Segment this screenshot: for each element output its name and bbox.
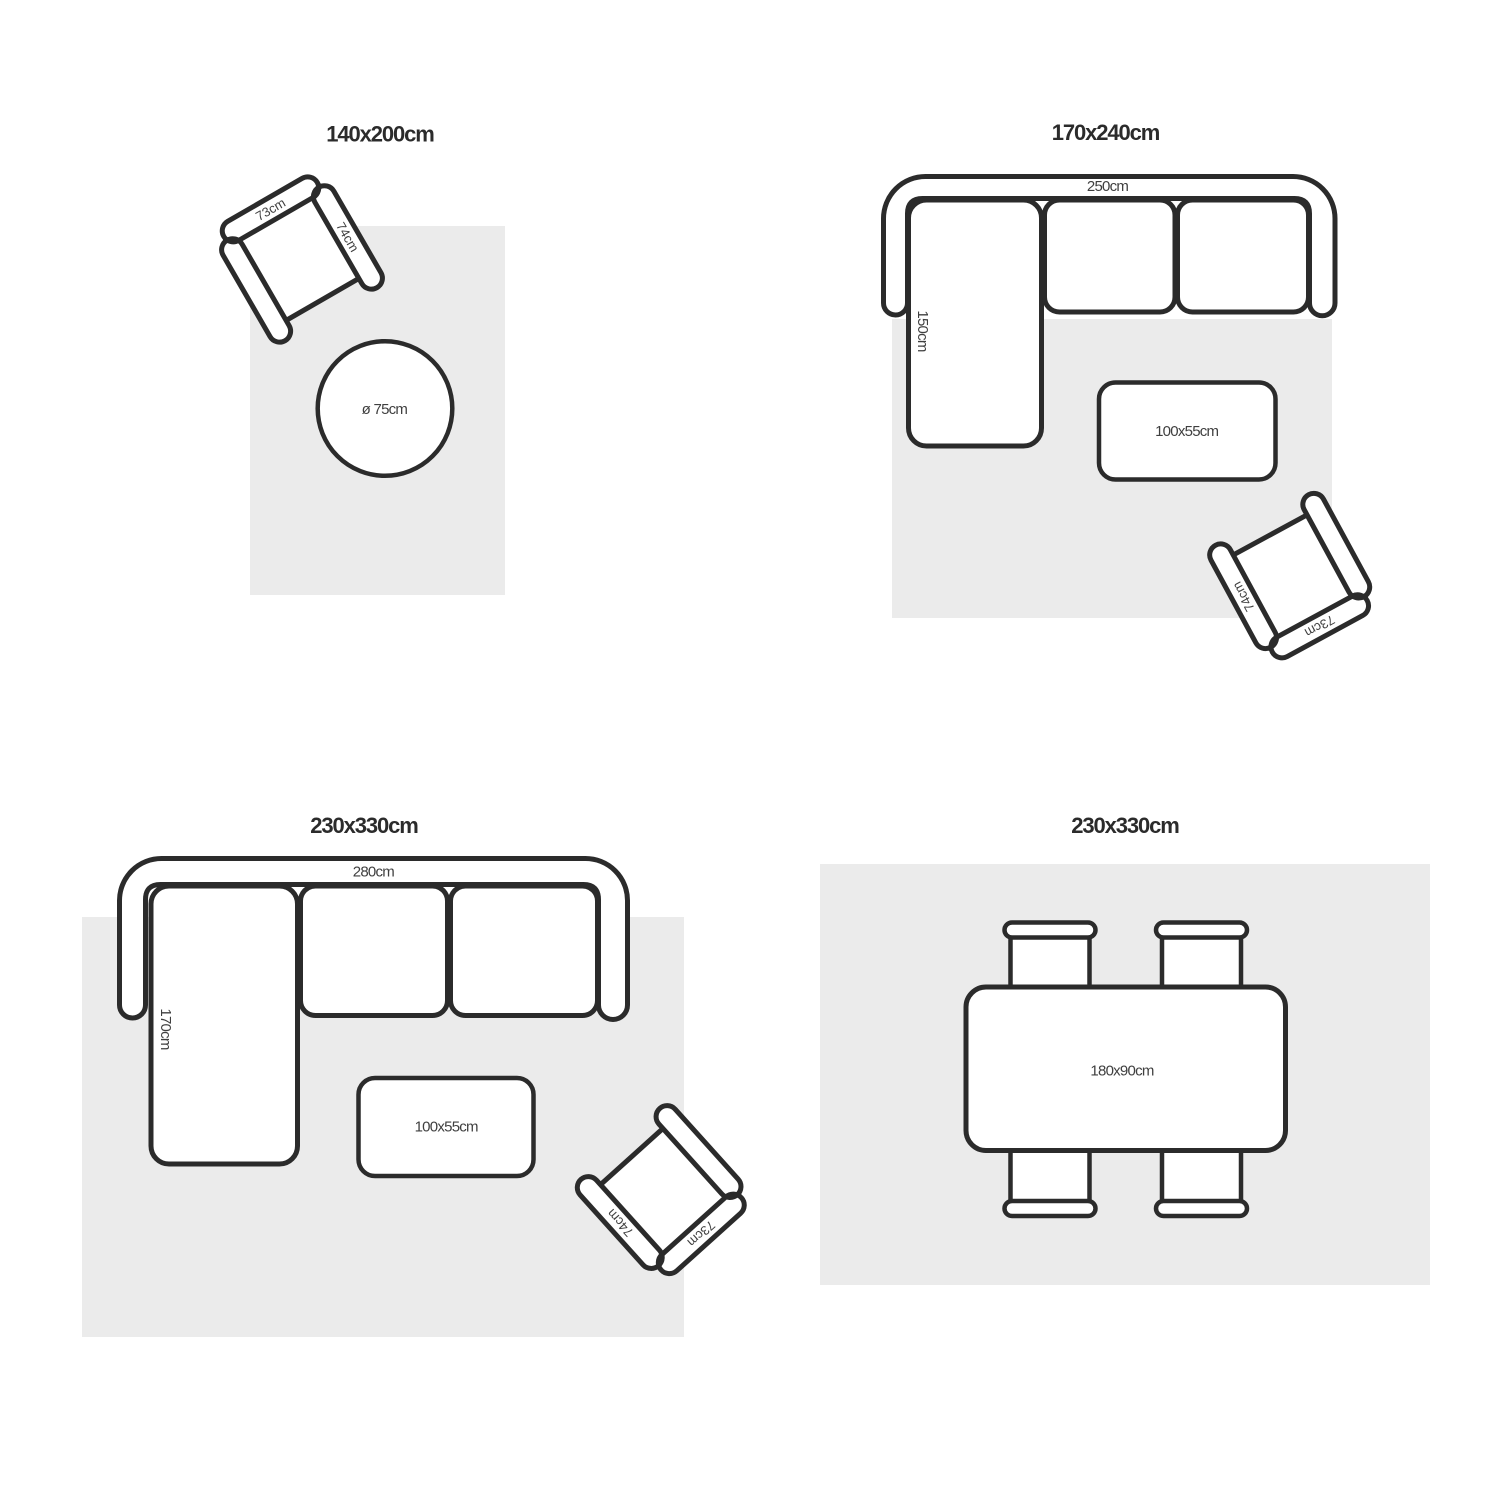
svg-text:170x240cm: 170x240cm <box>1052 120 1160 145</box>
svg-text:ø 75cm: ø 75cm <box>362 401 408 418</box>
svg-text:140x200cm: 140x200cm <box>326 122 434 147</box>
svg-text:230x330cm: 230x330cm <box>1071 813 1179 838</box>
svg-text:180x90cm: 180x90cm <box>1090 1063 1153 1080</box>
svg-text:230x330cm: 230x330cm <box>310 813 418 838</box>
svg-text:150cm: 150cm <box>914 310 931 352</box>
svg-text:170cm: 170cm <box>157 1008 174 1050</box>
svg-text:100x55cm: 100x55cm <box>415 1119 478 1136</box>
svg-text:100x55cm: 100x55cm <box>1155 423 1218 440</box>
svg-text:250cm: 250cm <box>1087 178 1129 195</box>
svg-text:280cm: 280cm <box>353 864 395 881</box>
